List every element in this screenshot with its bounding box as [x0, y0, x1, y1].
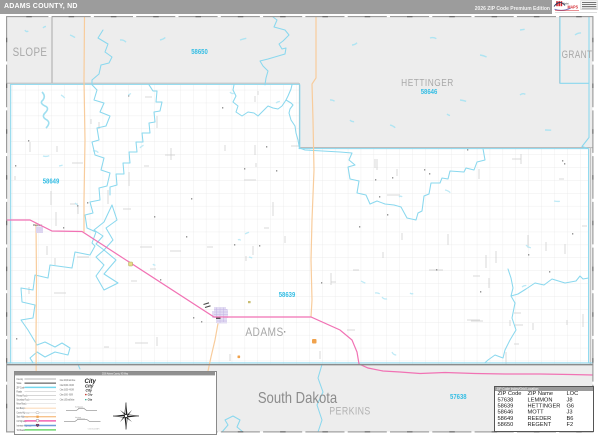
svg-text:58650: 58650 — [191, 49, 208, 57]
svg-text:HETTINGER: HETTINGER — [401, 77, 454, 88]
svg-text:ZIP Code: ZIP Code — [497, 391, 521, 397]
svg-text:City: City — [88, 392, 93, 396]
svg-text:58646: 58646 — [421, 89, 438, 97]
svg-text:58639: 58639 — [497, 403, 513, 409]
svg-text:Interchange: Interchange — [75, 415, 81, 418]
svg-text:GRANT: GRANT — [562, 49, 593, 61]
svg-text:City: City — [86, 388, 94, 392]
svg-text:57638: 57638 — [450, 394, 467, 402]
svg-text:J8: J8 — [566, 397, 572, 403]
svg-text:58650: 58650 — [497, 422, 513, 428]
svg-text:Minor Roads: Minor Roads — [17, 402, 28, 405]
svg-text:REEDER: REEDER — [527, 415, 551, 421]
svg-text:Cities 1,000 and Below: Cities 1,000 and Below — [60, 398, 75, 401]
svg-text:LEMMON: LEMMON — [527, 397, 552, 403]
svg-text:SLOPE: SLOPE — [13, 46, 48, 59]
svg-text:Grade Separation: Grade Separation — [75, 405, 83, 408]
svg-text:City: City — [88, 398, 93, 401]
svg-text:MOTT: MOTT — [527, 409, 544, 415]
svg-text:Toll Roads: Toll Roads — [17, 429, 26, 431]
svg-text:PERKINS: PERKINS — [329, 406, 370, 418]
svg-text:58649: 58649 — [43, 178, 60, 186]
svg-text:LOC: LOC — [566, 391, 578, 397]
svg-text:REGENT: REGENT — [527, 422, 551, 428]
svg-text:58639: 58639 — [279, 292, 296, 300]
svg-text:ADAMS: ADAMS — [245, 326, 283, 339]
svg-text:Roads: Roads — [17, 391, 23, 393]
svg-text:State: State — [17, 382, 23, 385]
svg-text:Cities 50,000 - 99,999: Cities 50,000 - 99,999 — [60, 383, 74, 386]
svg-text:HETTINGER: HETTINGER — [527, 403, 560, 409]
svg-text:B6: B6 — [566, 415, 573, 421]
svg-text:©2026 MarketMAPS: ©2026 MarketMAPS — [88, 427, 100, 430]
svg-text:J3: J3 — [566, 409, 572, 415]
svg-text:ZIP Name: ZIP Name — [527, 391, 553, 397]
svg-text:Cities 100,000 and Above: Cities 100,000 and Above — [60, 379, 76, 382]
svg-text:F2: F2 — [566, 422, 573, 428]
svg-text:G6: G6 — [566, 403, 574, 409]
svg-text:ZIP Code: ZIP Code — [17, 387, 26, 389]
svg-text:South Dakota: South Dakota — [258, 390, 338, 407]
svg-text:58649: 58649 — [497, 415, 513, 421]
svg-text:58646: 58646 — [497, 409, 513, 415]
svg-text:Cities 5,000 - 9,999: Cities 5,000 - 9,999 — [60, 393, 73, 396]
svg-text:2026 Adams County, ND Map: 2026 Adams County, ND Map — [102, 372, 128, 376]
svg-text:County: County — [17, 377, 24, 380]
svg-text:Cities 10,000 - 49,999: Cities 10,000 - 49,999 — [60, 388, 74, 391]
svg-text:57638: 57638 — [497, 397, 513, 403]
